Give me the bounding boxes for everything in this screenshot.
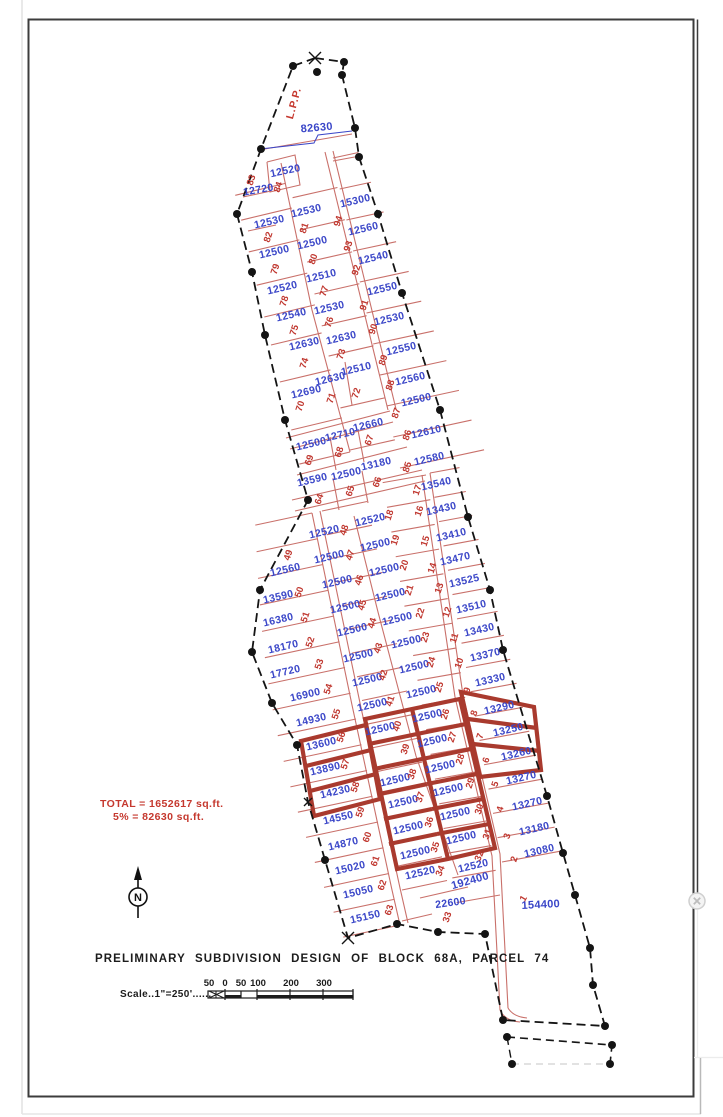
lot-area-label: 16380 [262, 611, 295, 630]
lot-number-label: 28 [454, 752, 468, 765]
lot-number-label: 68 [333, 445, 347, 458]
lot-number-label: 50 [293, 585, 307, 598]
lot-number-label: 75 [288, 323, 302, 337]
lot-area-label: 12550 [385, 340, 418, 359]
lot-area-label: 12560 [394, 370, 427, 389]
lot-area-label: 12500 [330, 465, 363, 484]
lot-number-label: 81 [298, 221, 312, 235]
lot-number-label: 62 [376, 878, 390, 891]
lot-area-label: 12560 [347, 220, 380, 239]
lot-number-label: 76 [323, 315, 337, 328]
lot-number-label: 73 [335, 347, 349, 360]
lot-area-label: 16900 [289, 686, 322, 705]
scale-bar-numbers: 50050100200300 [204, 978, 332, 989]
lot-area-label: 13590 [262, 588, 295, 607]
lot-number-label: 56 [335, 730, 349, 743]
survey-dot [543, 792, 551, 800]
lot-number-label: 7 [475, 732, 487, 740]
lot-number-label: 13 [433, 581, 447, 594]
lot-number-label: 26 [439, 707, 453, 720]
lot-number-label: 54 [322, 682, 336, 696]
lot-area-label: 82630 [300, 121, 333, 136]
survey-dot [589, 981, 597, 989]
lot-area-label: 13470 [439, 550, 472, 569]
lot-area-label: 12520 [269, 162, 302, 180]
lot-number-label: 72 [350, 386, 364, 399]
lot-number-label: 18 [383, 508, 397, 521]
lot-number-label: 51 [299, 610, 313, 624]
lot-number-label: 65 [344, 484, 358, 498]
subdivision-plan-sheet: 8263012520127201253015300125301256012500… [0, 0, 723, 1117]
survey-dot [338, 71, 346, 79]
lot-area-label: 13430 [463, 621, 496, 640]
lot-number-label: 36 [423, 815, 437, 828]
lot-area-label: 13525 [448, 572, 481, 591]
survey-dot [374, 210, 382, 218]
lot-linework [235, 134, 561, 1022]
survey-dot [393, 920, 401, 928]
survey-dot [268, 699, 276, 707]
lot-area-label: 17720 [269, 663, 302, 682]
lot-number-label: 4 [495, 804, 507, 813]
lot-area-label: 12500 [424, 758, 457, 777]
lot-number-label: 66 [371, 475, 385, 488]
lot-number-label: 19 [389, 533, 403, 546]
lot-area-label: 12580 [413, 450, 446, 469]
lot-number-label: 79 [269, 262, 283, 275]
lot-number-label: 70 [294, 399, 308, 412]
lot-number-label: 58 [349, 780, 363, 793]
lot-area-label: 12500 [374, 586, 407, 605]
survey-dot [355, 153, 363, 161]
lot-number-label: 25 [433, 680, 447, 694]
lot-area-label: 12510 [305, 267, 338, 286]
lot-area-label: 13290 [483, 699, 516, 718]
lot-number-label: 8 [469, 709, 481, 717]
lot-area-label: 15020 [334, 859, 367, 878]
north-arrow: N [129, 866, 147, 918]
survey-dot [481, 930, 489, 938]
scale-bar-number: 0 [222, 978, 227, 989]
survey-dot [351, 124, 359, 132]
lpp-label: L.P.P. [284, 86, 304, 120]
survey-dot [434, 928, 442, 936]
survey-dot [248, 648, 256, 656]
lot-area-label: 13540 [420, 475, 453, 494]
survey-dot [586, 944, 594, 952]
survey-dot [499, 1016, 507, 1024]
lot-number-label: 35 [429, 840, 443, 854]
lot-area-label: 12500 [381, 610, 414, 629]
lot-number-label: 74 [298, 356, 312, 370]
lot-area-label: 12500 [392, 819, 425, 838]
lot-area-label: 12530 [253, 213, 286, 232]
lot-area-label: 12500 [390, 633, 423, 652]
lot-area-label: 12500 [336, 621, 369, 640]
lot-area-label: 22600 [435, 895, 467, 911]
scale-text: Scale..1"=250'...... [120, 989, 212, 1000]
lot-number-label: 6 [481, 756, 493, 764]
lot-number-label: 55 [330, 707, 344, 721]
survey-dot [606, 1060, 614, 1068]
lot-number-label: 63 [383, 903, 397, 916]
survey-dot [304, 496, 312, 504]
survey-dot [248, 268, 256, 276]
lot-area-label: 15150 [349, 908, 382, 927]
lot-area-label: 12660 [352, 416, 385, 435]
scale-bar-number: 50 [204, 978, 215, 989]
lot-number-label: 44 [366, 616, 380, 630]
plan-drawing-canvas: 8263012520127201253015300125301256012500… [0, 0, 723, 1117]
lot-number-label: 57 [339, 757, 353, 770]
lot-area-label: 12690 [290, 383, 323, 402]
survey-dot [233, 210, 241, 218]
lot-area-label: 12500 [368, 561, 401, 580]
lot-area-label: 13080 [523, 842, 556, 861]
lot-area-labels: 8263012520127201253015300125301256012500… [242, 121, 560, 927]
lot-area-label: 12500 [295, 435, 328, 454]
lot-number-label: 49 [282, 548, 296, 561]
survey-dot [503, 1033, 511, 1041]
survey-dot [261, 331, 269, 339]
drawing-title: PRELIMINARY SUBDIVISION DESIGN OF BLOCK … [95, 953, 549, 965]
survey-dot [293, 741, 301, 749]
scale-bar-number: 200 [283, 978, 299, 989]
lot-number-label: 41 [384, 694, 398, 708]
scale-bar-number: 100 [250, 978, 266, 989]
sheet-frame [22, 0, 723, 1114]
lot-number-label: 14 [426, 561, 440, 575]
lot-area-label: 12610 [410, 423, 443, 442]
lot-area-label: 12500 [258, 243, 291, 262]
lot-area-label: 12550 [366, 280, 399, 299]
lot-number-label: 59 [354, 805, 368, 818]
lot-area-label: 12540 [357, 249, 390, 268]
survey-dot [313, 68, 321, 76]
scale-bar [208, 989, 353, 1000]
remainder-strip-boundary [507, 1037, 612, 1064]
survey-dot [256, 586, 264, 594]
lot-number-label: 47 [344, 548, 358, 561]
lot-number-label: 80 [307, 252, 321, 265]
lot-number-label: 84 [272, 180, 286, 194]
lot-area-label: 192400 [450, 870, 490, 892]
lot-area-label: 12500 [342, 647, 375, 666]
lot-number-label: 39 [399, 742, 413, 755]
lot-number-label: 3 [502, 832, 514, 840]
lot-number-label: 69 [303, 453, 317, 466]
lot-area-label: 13270 [511, 795, 544, 814]
lot-number-label: 34 [434, 863, 448, 878]
lot-area-label: 12500 [405, 683, 438, 702]
survey-dot [559, 849, 567, 857]
lot-number-label: 46 [353, 573, 367, 586]
survey-dot [464, 513, 472, 521]
lot-number-label: 10 [453, 656, 467, 669]
total-area-note: TOTAL = 1652617 sq.ft. [100, 798, 223, 810]
close-circle-icon[interactable] [689, 893, 705, 909]
lot-number-label: 48 [338, 523, 352, 536]
lot-area-label: 12530 [313, 299, 346, 318]
lot-number-label: 21 [403, 583, 417, 597]
survey-dot [257, 145, 265, 153]
survey-dot [321, 856, 329, 864]
lot-area-label: 14870 [327, 835, 360, 854]
lot-area-label: 12520 [354, 511, 387, 530]
lot-number-label: 60 [361, 830, 375, 843]
lot-area-label: 12710 [324, 426, 357, 445]
lot-number-label: 38 [406, 767, 420, 780]
lot-number-label: 94 [332, 214, 346, 228]
lot-number-label: 37 [414, 790, 428, 803]
survey-dot [571, 891, 579, 899]
lot-area-label: 13430 [425, 500, 458, 519]
lot-number-label: 82 [262, 230, 276, 243]
survey-dot [281, 416, 289, 424]
survey-dot [486, 586, 494, 594]
lot-number-label: 2 [509, 855, 521, 863]
north-letter: N [134, 892, 142, 904]
lot-number-label: 40 [391, 719, 405, 732]
lot-number-label: 22 [414, 606, 428, 619]
lot-area-label: 12630 [288, 335, 321, 354]
scale-bar-number: 50 [236, 978, 247, 989]
lot-area-label: 12540 [275, 306, 308, 325]
lot-area-label: 12500 [321, 573, 354, 592]
lot-number-label: 5 [490, 779, 502, 788]
lot-number-label: 11 [448, 631, 462, 645]
lot-area-label: 12500 [296, 234, 329, 253]
survey-dot [508, 1060, 516, 1068]
lot-area-label: 12500 [359, 536, 392, 555]
lot-number-label: 29 [464, 776, 478, 789]
lot-area-label: 12530 [290, 202, 323, 221]
lot-area-label: 12520 [308, 523, 341, 542]
survey-dot [398, 289, 406, 297]
survey-dot [289, 62, 297, 70]
lot-area-label: 13180 [518, 820, 551, 839]
lot-number-label: 33 [441, 910, 455, 923]
survey-dot [608, 1041, 616, 1049]
lot-number-label: 23 [419, 630, 433, 643]
lot-number-label: 87 [390, 406, 404, 419]
lot-area-label: 12500 [313, 548, 346, 567]
lot-area-label: 13410 [435, 526, 468, 545]
lot-number-label: 12 [441, 605, 455, 618]
lot-area-label: 15050 [342, 883, 375, 902]
lot-number-label: 77 [318, 284, 332, 297]
lot-area-label: 12500 [400, 391, 433, 410]
five-percent-note: 5% = 82630 sq.ft. [113, 811, 204, 823]
lot-number-label: 24 [425, 655, 439, 669]
survey-dot [340, 58, 348, 66]
lot-number-label: 53 [313, 657, 327, 670]
survey-dot [601, 1022, 609, 1030]
lot-area-label: 12630 [325, 329, 358, 348]
scale-bar-number: 300 [316, 978, 332, 989]
survey-dot [436, 406, 444, 414]
lot-number-label: 78 [278, 294, 292, 307]
lot-number-label: 61 [369, 854, 383, 868]
lot-number-label: 27 [446, 730, 460, 743]
lot-number-label: 20 [398, 558, 412, 571]
lot-number-label: 43 [372, 641, 386, 654]
